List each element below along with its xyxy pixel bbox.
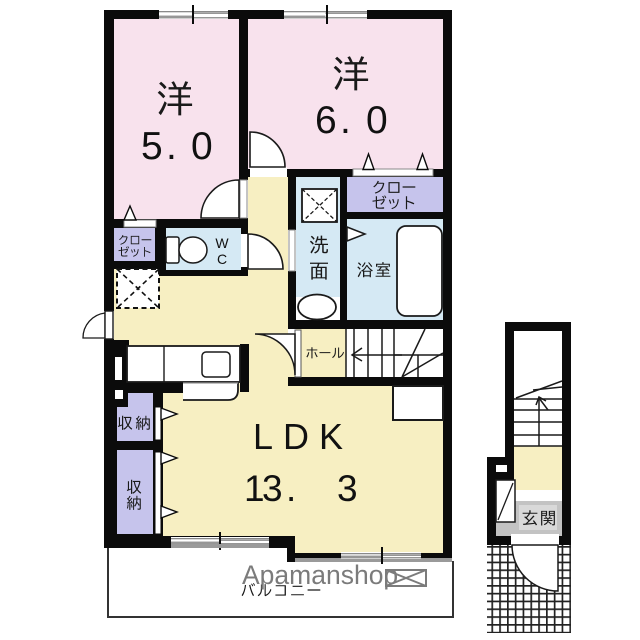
- svg-text:Apamanshop: Apamanshop: [242, 560, 398, 590]
- svg-text:.: .: [340, 99, 351, 142]
- svg-text:C: C: [217, 251, 227, 267]
- svg-text:6: 6: [315, 99, 337, 142]
- svg-text:3: 3: [262, 468, 283, 509]
- svg-text:.: .: [286, 468, 296, 509]
- svg-text:3: 3: [337, 468, 358, 509]
- svg-text:0: 0: [366, 99, 388, 142]
- svg-text:0: 0: [191, 125, 213, 168]
- svg-text:5: 5: [141, 125, 163, 168]
- svg-text:W: W: [215, 235, 229, 251]
- svg-text:.: .: [166, 125, 177, 168]
- svg-text:LDK: LDK: [253, 416, 353, 457]
